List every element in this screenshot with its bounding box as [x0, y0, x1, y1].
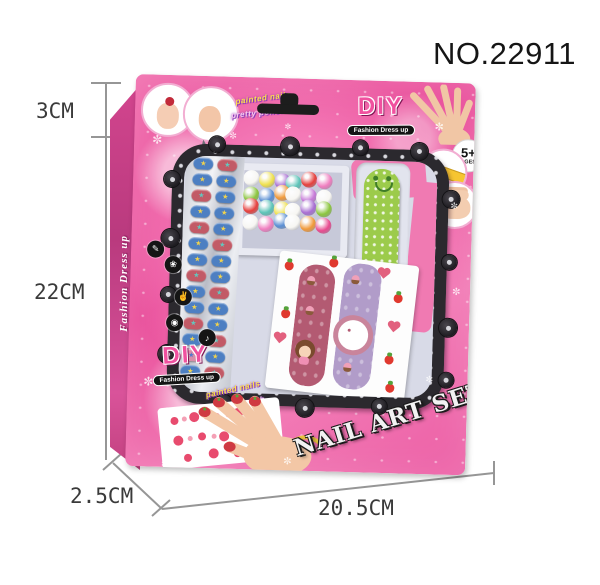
nail-chip: ★	[191, 189, 212, 202]
heart-sticker	[275, 333, 285, 343]
cupcake-sticker	[351, 279, 360, 285]
nail-chip: ★	[217, 158, 238, 171]
bead	[258, 216, 274, 232]
nail-motif-icon: ★	[191, 189, 212, 202]
bead	[258, 199, 274, 215]
nail-motif-icon: ★	[217, 158, 238, 171]
nail-motif-icon: ★	[216, 174, 237, 187]
nail-graphic	[156, 103, 179, 130]
bead	[301, 171, 317, 187]
dimension-label-side-height: 22CM	[34, 280, 85, 304]
nail-motif-icon: ★	[189, 221, 210, 234]
bead	[300, 216, 316, 232]
frame-curl	[353, 140, 368, 155]
girl-sticker	[293, 339, 318, 367]
box-front: painted nails pretty polish DIY Fashion …	[125, 74, 476, 475]
frame-curl	[161, 287, 176, 302]
hang-slot-bar	[257, 103, 319, 115]
sparkle-icon: ✼	[284, 122, 291, 131]
nail-chip: ★	[193, 157, 214, 170]
frame-curl	[209, 136, 225, 152]
nail-motif-icon: ★	[210, 270, 231, 283]
diy-logo-bottom: DIY Fashion Dress up	[141, 341, 231, 388]
girl-body	[298, 356, 309, 365]
sticker-sheet	[265, 250, 420, 398]
strawberry-sticker	[384, 355, 394, 365]
nail-motif-icon: ★	[183, 317, 204, 330]
nail-polish-icon: ✎	[147, 240, 164, 257]
nail-chip: ★	[208, 302, 229, 315]
nail-motif-icon: ★	[209, 286, 230, 299]
nail-motif-icon: ★	[192, 173, 213, 186]
bead	[243, 170, 259, 186]
strawberry-sticker	[385, 383, 395, 393]
beads-tray	[235, 163, 350, 258]
beads	[243, 170, 343, 233]
diy-logo-title: DIY	[141, 341, 230, 370]
sparkle-icon: ✼	[452, 287, 461, 298]
nail-chip: ★	[212, 238, 233, 251]
nail-motif-icon: ★	[187, 253, 208, 266]
heart-sticker	[389, 322, 399, 332]
nail-chip: ★	[190, 205, 211, 218]
frame-curl	[161, 229, 179, 247]
bead	[242, 214, 258, 230]
nail-chip: ★	[188, 237, 209, 250]
bead	[316, 201, 332, 217]
frame-curl	[164, 171, 180, 187]
frame-curl	[442, 255, 457, 270]
dimension-label-top-height: 3CM	[36, 99, 74, 123]
nail-chip: ★	[209, 286, 230, 299]
strawberry-sticker	[393, 294, 403, 304]
nail-motif-icon: ★	[190, 205, 211, 218]
nail-chip: ★	[215, 190, 236, 203]
nail-motif-icon: ★	[208, 302, 229, 315]
nail-motif-icon: ★	[211, 254, 232, 267]
nail-motif-icon: ★	[213, 222, 234, 235]
nail-motif-icon: ★	[193, 157, 214, 170]
nail-chip: ★	[183, 317, 204, 330]
nail-motif-icon: ★	[186, 269, 207, 282]
nail-motif-icon: ★	[214, 206, 235, 219]
bead	[243, 198, 259, 214]
bead	[259, 171, 275, 187]
nail-chip: ★	[216, 174, 237, 187]
nail-motif-icon: ★	[188, 237, 209, 250]
bead	[316, 173, 332, 189]
nail-chip: ★	[187, 253, 208, 266]
product-box: Fashion Dress up painted nails pretty po…	[108, 70, 503, 490]
hand-with-nails-graphic	[151, 387, 328, 476]
nail-chip: ★	[211, 254, 232, 267]
thumb-graphic	[198, 106, 221, 133]
nail-motif-icon: ★	[215, 190, 236, 203]
strawberry-sticker	[284, 261, 294, 271]
frame-curl	[439, 319, 457, 337]
bead	[284, 214, 300, 230]
nail-chip: ★	[210, 270, 231, 283]
bead	[300, 199, 316, 215]
nail-chip: ★	[186, 269, 207, 282]
diy-logo-subtitle: Fashion Dress up	[347, 125, 416, 136]
nail-chip: ★	[213, 222, 234, 235]
frame-curl	[281, 137, 299, 155]
product-photo: NO.22911 3CM 22CM 2.5CM 20.5CM Fashion D…	[0, 0, 600, 585]
nail-chip: ★	[214, 206, 235, 219]
hand-graphic-icon	[406, 84, 474, 146]
product-number: NO.22911	[433, 36, 576, 72]
nail-chip: ★	[192, 173, 213, 186]
bead	[285, 186, 301, 202]
strawberry-sticker	[329, 258, 339, 268]
nail-motif-icon: ★	[212, 238, 233, 251]
frame-curl	[411, 143, 428, 160]
age-value: 5+	[461, 147, 476, 159]
dimension-label-width: 20.5CM	[318, 496, 394, 520]
bead	[315, 217, 331, 233]
strawberry-sticker	[281, 309, 291, 319]
nail-chip: ★	[189, 221, 210, 234]
